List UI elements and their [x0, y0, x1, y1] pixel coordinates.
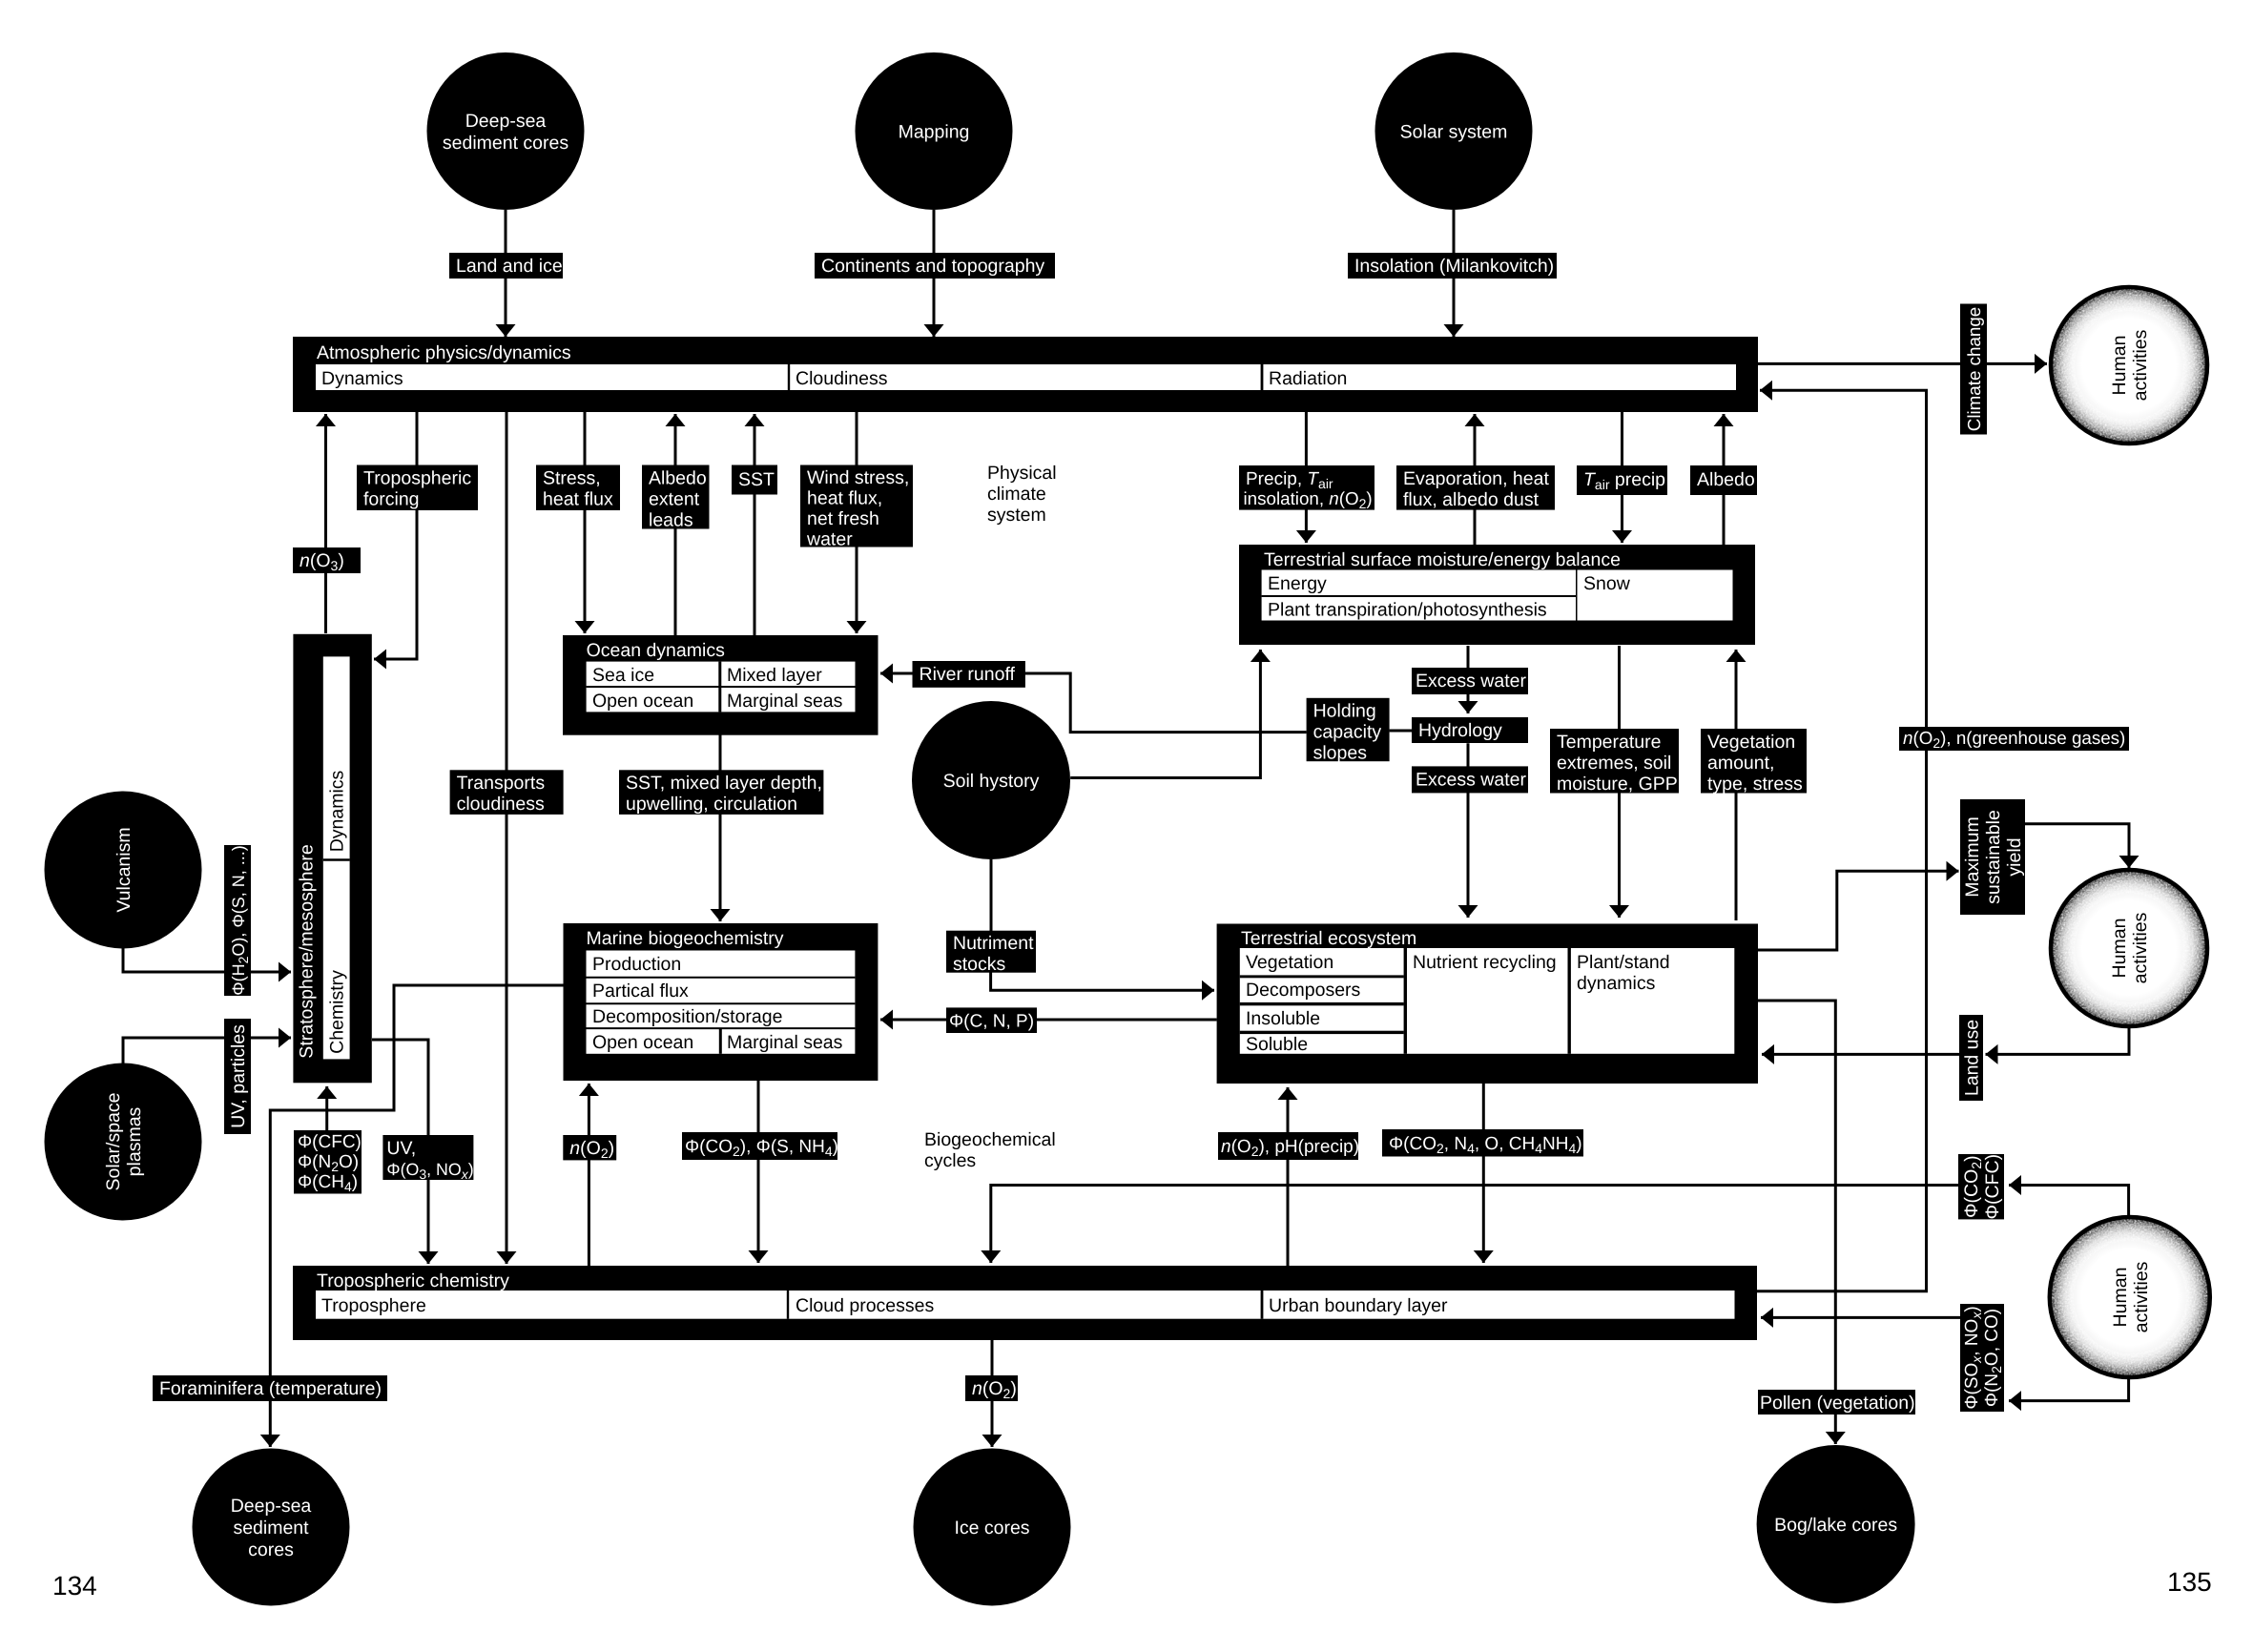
svg-text:Insoluble: Insoluble — [1246, 1008, 1320, 1029]
svg-text:Stress,: Stress, — [543, 468, 601, 489]
svg-text:stocks: stocks — [953, 954, 1006, 975]
svg-text:Wind stress,: Wind stress, — [807, 467, 909, 488]
svg-text:Production: Production — [592, 954, 681, 975]
svg-text:Human: Human — [2109, 336, 2130, 396]
svg-text:activities: activities — [2130, 912, 2151, 983]
svg-text:Terrestrial ecosystem: Terrestrial ecosystem — [1241, 928, 1416, 949]
svg-text:Φ(CO2, N4, O, CH4NH4): Φ(CO2, N4, O, CH4NH4) — [1389, 1134, 1582, 1156]
svg-text:Biogeochemical: Biogeochemical — [924, 1129, 1056, 1150]
svg-text:Hydrology: Hydrology — [1418, 720, 1502, 741]
svg-text:Φ(N2O): Φ(N2O) — [298, 1152, 359, 1174]
svg-text:Nutriment: Nutriment — [953, 933, 1034, 954]
svg-text:Vegetation: Vegetation — [1246, 952, 1333, 973]
svg-text:climate: climate — [987, 484, 1046, 505]
svg-text:Marine biogeochemistry: Marine biogeochemistry — [587, 928, 784, 949]
svg-text:cores: cores — [248, 1539, 294, 1560]
svg-text:extent: extent — [649, 489, 700, 510]
svg-text:Chemistry: Chemistry — [327, 970, 348, 1054]
svg-text:flux, albedo dust: flux, albedo dust — [1403, 489, 1540, 510]
svg-text:Atmospheric physics/dynamics: Atmospheric physics/dynamics — [317, 342, 571, 363]
svg-text:Partical flux: Partical flux — [592, 981, 689, 1002]
svg-text:River runoff: River runoff — [920, 664, 1016, 685]
svg-text:Φ(H2O), Φ(S, N, ...): Φ(H2O), Φ(S, N, ...) — [229, 845, 251, 996]
svg-text:Decomposers: Decomposers — [1246, 980, 1361, 1001]
svg-text:Holding: Holding — [1313, 701, 1376, 722]
svg-text:Temperature: Temperature — [1557, 732, 1661, 753]
svg-text:Land use: Land use — [1962, 1020, 1983, 1096]
svg-text:upwelling, circulation: upwelling, circulation — [626, 794, 797, 815]
svg-text:Physical: Physical — [987, 463, 1057, 484]
svg-text:Human: Human — [2110, 1268, 2131, 1328]
svg-text:Energy: Energy — [1268, 573, 1327, 594]
svg-text:Cloud processes: Cloud processes — [796, 1295, 934, 1316]
svg-text:SST: SST — [738, 469, 775, 490]
svg-text:net fresh: net fresh — [807, 508, 879, 529]
svg-text:system: system — [987, 505, 1046, 526]
svg-text:Human: Human — [2109, 919, 2130, 979]
svg-text:Tropospheric: Tropospheric — [363, 468, 471, 489]
svg-text:Φ(CO2), Φ(S, NH4): Φ(CO2), Φ(S, NH4) — [685, 1137, 838, 1159]
svg-text:dynamics: dynamics — [1577, 973, 1656, 994]
svg-text:Φ(C, N, P): Φ(C, N, P) — [949, 1011, 1034, 1031]
svg-text:cloudiness: cloudiness — [457, 794, 545, 815]
svg-text:Vegetation: Vegetation — [1707, 732, 1795, 753]
svg-text:plasmas: plasmas — [124, 1106, 145, 1176]
svg-text:Terrestrial surface moisture/e: Terrestrial surface moisture/energy bala… — [1264, 549, 1621, 570]
svg-text:Land and ice: Land and ice — [456, 256, 563, 277]
svg-text:Ice cores: Ice cores — [954, 1518, 1029, 1538]
svg-text:Deep-sea: Deep-sea — [231, 1496, 312, 1517]
svg-text:Maximum: Maximum — [1962, 816, 1983, 898]
svg-text:n(O2): n(O2) — [569, 1138, 614, 1161]
svg-text:Snow: Snow — [1583, 573, 1631, 594]
svg-text:cycles: cycles — [924, 1150, 976, 1171]
svg-text:insolation, n(O2): insolation, n(O2) — [1244, 488, 1373, 511]
svg-text:n(O3): n(O3) — [300, 550, 344, 573]
svg-text:Open ocean: Open ocean — [592, 1032, 693, 1053]
svg-text:n(O2): n(O2) — [972, 1378, 1017, 1401]
svg-text:Φ(O3, NOx): Φ(O3, NOx) — [386, 1160, 473, 1182]
svg-text:Soluble: Soluble — [1246, 1034, 1308, 1055]
svg-text:Foraminifera (temperature): Foraminifera (temperature) — [159, 1378, 382, 1399]
svg-text:sustainable: sustainable — [1983, 810, 2004, 904]
svg-text:activities: activities — [2130, 329, 2151, 401]
svg-text:Ocean dynamics: Ocean dynamics — [587, 640, 725, 661]
svg-text:Φ(CFC): Φ(CFC) — [298, 1132, 362, 1152]
svg-text:Troposphere: Troposphere — [321, 1295, 426, 1316]
svg-text:Dynamics: Dynamics — [327, 770, 348, 852]
svg-text:Evaporation, heat: Evaporation, heat — [1403, 468, 1549, 489]
svg-text:sediment cores: sediment cores — [443, 133, 568, 154]
svg-text:Solar system: Solar system — [1400, 122, 1508, 143]
svg-text:134: 134 — [52, 1571, 97, 1600]
svg-text:heat flux: heat flux — [543, 489, 613, 510]
svg-text:Marginal seas: Marginal seas — [727, 1032, 843, 1053]
svg-text:leads: leads — [649, 510, 693, 531]
svg-text:Φ(CFC): Φ(CFC) — [1982, 1154, 2003, 1220]
svg-text:Sea ice: Sea ice — [592, 665, 654, 686]
svg-text:Decomposition/storage: Decomposition/storage — [592, 1006, 782, 1027]
svg-text:SST, mixed layer depth,: SST, mixed layer depth, — [626, 773, 822, 794]
svg-text:Dynamics: Dynamics — [321, 368, 403, 389]
svg-text:Pollen (vegetation): Pollen (vegetation) — [1760, 1393, 1915, 1414]
svg-text:Nutrient recycling: Nutrient recycling — [1413, 952, 1557, 973]
svg-text:forcing: forcing — [363, 489, 420, 510]
svg-text:Stratosphere/mesosphere: Stratosphere/mesosphere — [297, 844, 318, 1058]
svg-text:Urban boundary layer: Urban boundary layer — [1269, 1295, 1448, 1316]
svg-text:Cloudiness: Cloudiness — [796, 368, 888, 389]
svg-text:activities: activities — [2131, 1261, 2152, 1332]
svg-text:n(O2), pH(precip): n(O2), pH(precip) — [1221, 1137, 1359, 1159]
svg-text:Soil hystory: Soil hystory — [943, 771, 1040, 792]
svg-text:Insolation (Milankovitch): Insolation (Milankovitch) — [1354, 256, 1554, 277]
svg-text:Continents and topography: Continents and topography — [821, 256, 1044, 277]
svg-text:Marginal seas: Marginal seas — [727, 691, 843, 712]
svg-text:Albedo: Albedo — [1697, 469, 1755, 490]
svg-text:Open ocean: Open ocean — [592, 691, 693, 712]
svg-text:moisture, GPP: moisture, GPP — [1557, 774, 1678, 795]
svg-text:Φ(N2O, CO): Φ(N2O, CO) — [1982, 1309, 2004, 1407]
svg-text:Mapping: Mapping — [899, 122, 970, 143]
svg-text:heat flux,: heat flux, — [807, 488, 882, 509]
svg-text:Solar/space: Solar/space — [103, 1093, 124, 1191]
svg-text:UV, particles: UV, particles — [228, 1024, 249, 1128]
svg-text:Tropospheric chemistry: Tropospheric chemistry — [317, 1270, 509, 1291]
svg-text:Excess water: Excess water — [1416, 671, 1526, 692]
svg-text:yield: yield — [2004, 837, 2025, 876]
svg-text:water: water — [806, 529, 853, 550]
svg-text:Radiation: Radiation — [1269, 368, 1347, 389]
svg-text:Deep-sea: Deep-sea — [465, 111, 547, 132]
svg-text:UV,: UV, — [386, 1138, 416, 1159]
svg-text:135: 135 — [2167, 1567, 2212, 1597]
svg-text:amount,: amount, — [1707, 753, 1774, 774]
svg-text:Climate change: Climate change — [1964, 307, 1984, 432]
svg-text:Transports: Transports — [457, 773, 546, 794]
svg-text:Plant/stand: Plant/stand — [1577, 952, 1670, 973]
svg-text:extremes, soil: extremes, soil — [1557, 753, 1671, 774]
svg-text:Vulcanism: Vulcanism — [114, 827, 134, 912]
svg-text:type, stress: type, stress — [1707, 774, 1803, 795]
svg-text:sediment: sediment — [233, 1518, 309, 1538]
svg-text:Excess water: Excess water — [1416, 770, 1526, 791]
svg-text:Bog/lake cores: Bog/lake cores — [1774, 1515, 1897, 1536]
svg-text:slopes: slopes — [1313, 743, 1368, 764]
svg-text:capacity: capacity — [1313, 722, 1382, 743]
svg-text:Albedo: Albedo — [649, 468, 707, 489]
svg-text:Plant transpiration/photosynth: Plant transpiration/photosynthesis — [1268, 600, 1547, 621]
svg-text:Mixed layer: Mixed layer — [727, 665, 822, 686]
